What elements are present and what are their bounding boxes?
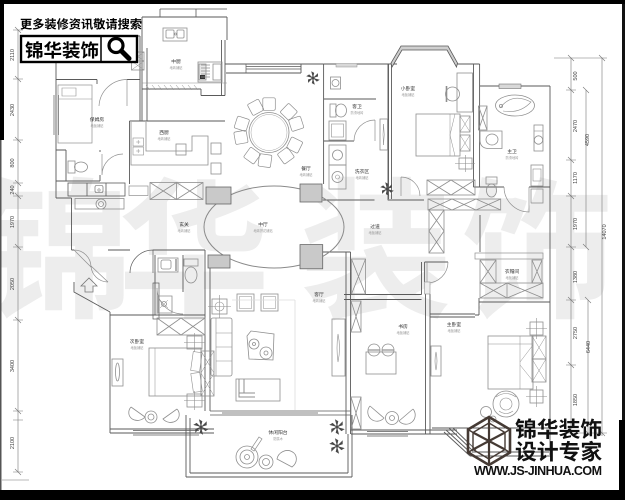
svg-text:地砖铺贴: 地砖铺贴 [313,298,327,303]
svg-text:地板铺贴: 地板铺贴 [402,92,416,97]
svg-text:地板铺贴: 地板铺贴 [369,230,383,235]
svg-text:地砖铺贴: 地砖铺贴 [356,175,370,180]
svg-text:保姆房: 保姆房 [90,116,105,123]
svg-text:1970: 1970 [10,216,16,228]
svg-text:衣帽间: 衣帽间 [505,268,520,275]
svg-text:地板铺贴: 地板铺贴 [91,123,105,128]
svg-text:主卫: 主卫 [507,148,517,155]
svg-text:小卧室: 小卧室 [401,85,416,92]
svg-text:防腐木: 防腐木 [273,436,283,441]
svg-text:中厨: 中厨 [171,58,181,65]
svg-text:地板铺贴: 地板铺贴 [506,275,520,280]
svg-text:餐厅: 餐厅 [301,165,311,172]
svg-text:800: 800 [10,158,16,167]
svg-text:1850: 1850 [573,394,579,406]
svg-text:主卧室: 主卧室 [447,321,462,328]
svg-text:西厨: 西厨 [159,130,169,136]
svg-text:1380: 1380 [573,271,579,283]
svg-text:2100: 2100 [10,437,16,449]
svg-text:地板铺贴: 地板铺贴 [448,328,462,333]
svg-text:4590: 4590 [585,134,591,146]
svg-text:2750: 2750 [573,327,579,339]
svg-text:地砖拼花铺贴: 地砖拼花铺贴 [253,228,273,233]
svg-text:2470: 2470 [573,120,579,132]
svg-text:2050: 2050 [10,278,16,290]
svg-text:书房: 书房 [398,323,408,330]
svg-text:休闲阳台: 休闲阳台 [268,429,287,436]
svg-text:1170: 1170 [573,172,579,184]
svg-text:地板铺贴: 地板铺贴 [397,330,411,335]
svg-text:地砖铺贴: 地砖铺贴 [170,65,184,70]
svg-text:14070: 14070 [602,224,608,239]
svg-text:地砖铺贴: 地砖铺贴 [300,172,314,177]
svg-text:玄关: 玄关 [179,221,189,228]
svg-text:洗衣区: 洗衣区 [355,168,370,175]
svg-text:2110: 2110 [10,49,16,61]
svg-text:6440: 6440 [586,341,592,353]
svg-text:2430: 2430 [10,104,16,116]
svg-text:客厅: 客厅 [314,291,324,298]
svg-text:防滑地砖: 防滑地砖 [506,155,520,160]
svg-text:中厅: 中厅 [258,221,268,228]
svg-text:过道: 过道 [370,223,380,230]
svg-text:防滑地砖: 防滑地砖 [351,110,365,115]
svg-text:地板铺贴: 地板铺贴 [131,345,145,350]
svg-text:1970: 1970 [573,218,579,230]
svg-text:500: 500 [573,71,579,80]
svg-text:WWW.JS-JINHUA.COM: WWW.JS-JINHUA.COM [474,464,602,478]
svg-text:地砖铺贴: 地砖铺贴 [158,136,172,141]
svg-text:地砖铺贴: 地砖铺贴 [178,228,192,233]
svg-text:次卧室: 次卧室 [130,338,145,345]
svg-text:240: 240 [10,185,16,194]
svg-text:3400: 3400 [10,360,16,372]
svg-text:客卫: 客卫 [352,103,362,110]
